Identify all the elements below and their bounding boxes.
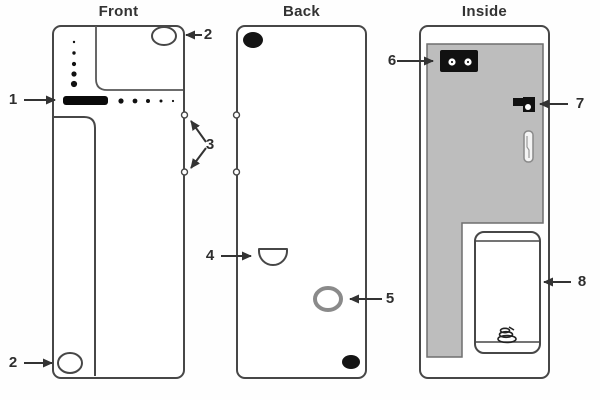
callout-6-label: 6 [385,53,399,69]
front-led-row [118,98,174,103]
diagram-graphics [0,0,600,400]
callout-2-bottom-label: 2 [6,355,20,371]
callout-3-label: 3 [203,137,217,153]
callout-4-label: 4 [203,248,217,264]
callout-5-label: 5 [383,291,397,307]
front-door-panel-line [54,117,95,376]
callout-8-label: 8 [575,274,589,290]
inside-power-connector [440,50,478,72]
inside-view-title: Inside [419,3,550,21]
front-top-button [152,27,176,45]
back-view-title: Back [236,3,367,21]
back-ring-grommet [315,288,341,310]
front-view-title: Front [52,3,185,21]
front-led-column [71,41,77,87]
front-bottom-button [58,353,82,373]
back-top-hole [243,32,263,48]
callout-7-label: 7 [573,96,587,112]
diagram-stage: Front Back Inside [0,0,600,400]
callout-1-label: 1 [6,92,20,108]
front-display-bar [63,96,108,105]
callout-2-top-label: 2 [201,27,215,43]
inside-lever-slot [524,131,533,162]
back-latch-tab [259,249,287,265]
back-bottom-hole [342,355,360,369]
